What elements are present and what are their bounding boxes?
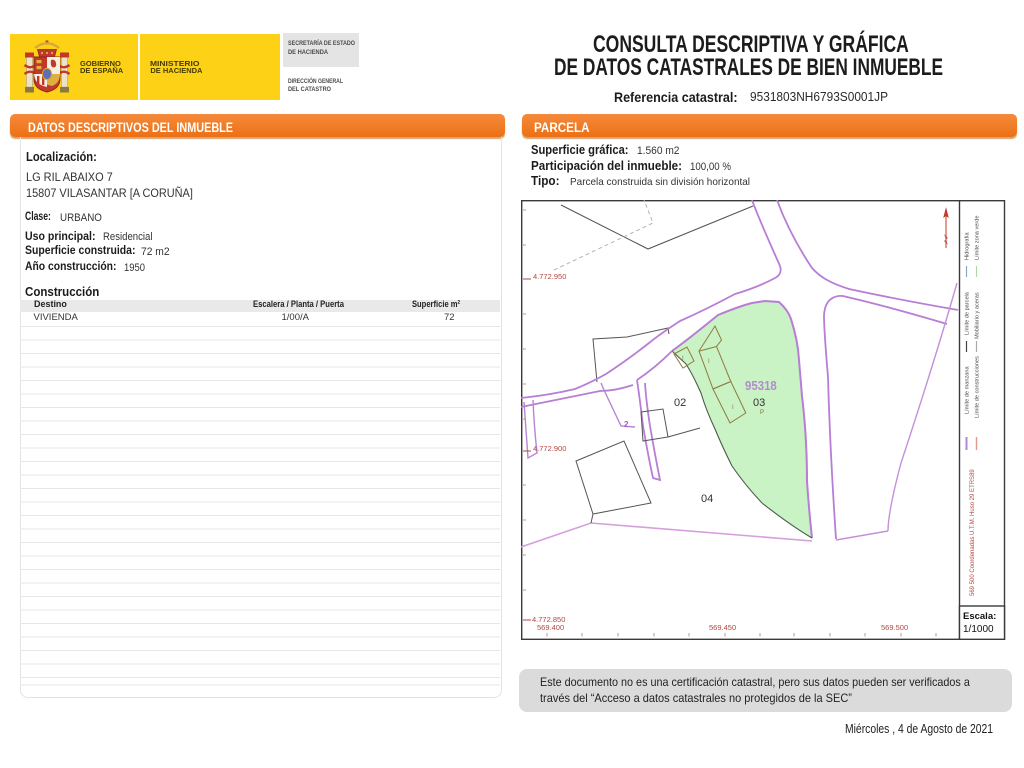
svg-text:569.400: 569.400 — [537, 623, 564, 632]
svg-text:Escala:: Escala: — [963, 611, 996, 622]
svg-text:569.450: 569.450 — [709, 623, 736, 632]
svg-text:02: 02 — [674, 397, 686, 409]
svg-text:Límite de construcciones: Límite de construcciones — [975, 356, 981, 418]
svg-text:Límite de manzana: Límite de manzana — [965, 366, 971, 414]
svg-text:Mobiliario y aceras: Mobiliario y aceras — [975, 292, 981, 339]
svg-text:P: P — [760, 410, 764, 416]
svg-text:Hidrografía: Hidrografía — [965, 231, 971, 260]
svg-text:04: 04 — [701, 493, 713, 505]
svg-text:4.772.900: 4.772.900 — [533, 444, 566, 453]
svg-text:2: 2 — [624, 420, 629, 429]
svg-text:569 500 Coordenadas U.T.M. Hus: 569 500 Coordenadas U.T.M. Huso 29 ETRS8… — [970, 469, 976, 596]
svg-text:569.500: 569.500 — [881, 623, 908, 632]
svg-text:03: 03 — [753, 397, 765, 409]
svg-text:1/1000: 1/1000 — [963, 624, 994, 635]
svg-text:95318: 95318 — [745, 378, 777, 393]
svg-text:4.772.950: 4.772.950 — [533, 272, 566, 281]
svg-text:Límite zona verde: Límite zona verde — [975, 216, 981, 260]
svg-text:Límite de parcela: Límite de parcela — [965, 291, 971, 335]
